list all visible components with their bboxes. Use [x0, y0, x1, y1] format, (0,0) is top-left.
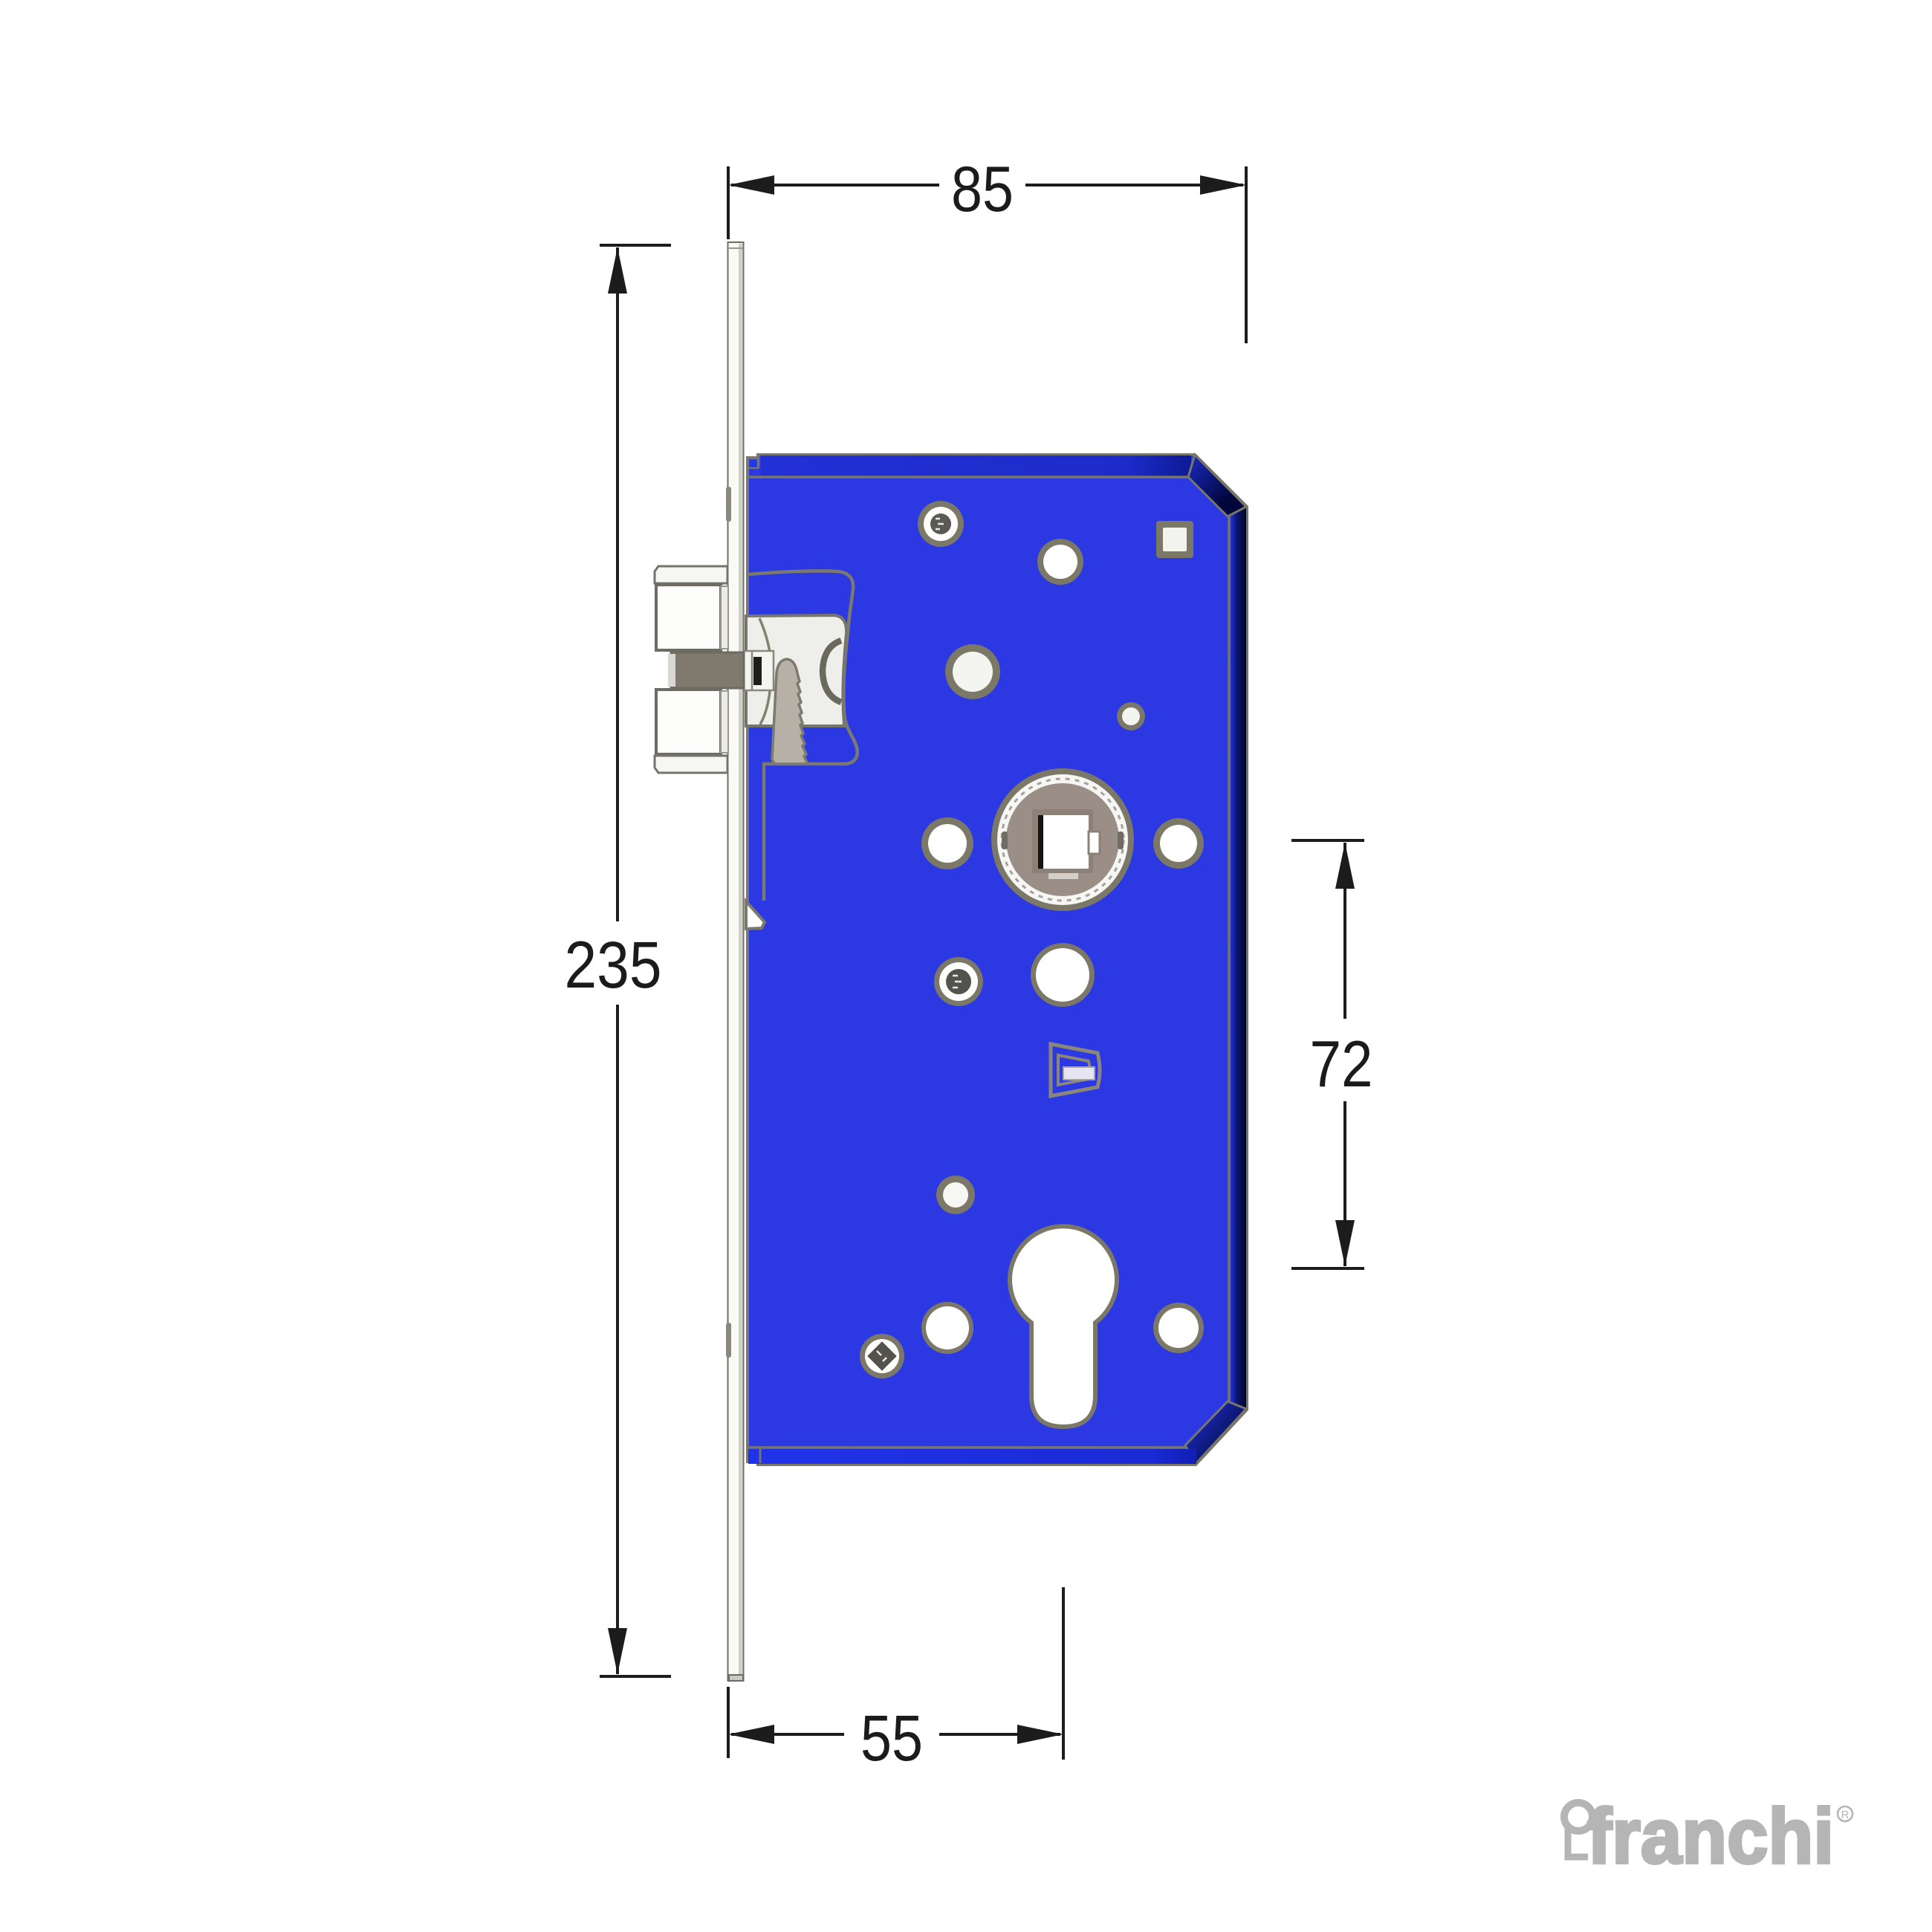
- svg-text:55: 55: [860, 1702, 923, 1774]
- svg-text:franchi: franchi: [1587, 1793, 1834, 1880]
- svg-text:72: 72: [1310, 1027, 1373, 1100]
- svg-text:85: 85: [951, 154, 1014, 225]
- svg-text:R: R: [1841, 1809, 1850, 1821]
- svg-text:235: 235: [565, 927, 662, 1002]
